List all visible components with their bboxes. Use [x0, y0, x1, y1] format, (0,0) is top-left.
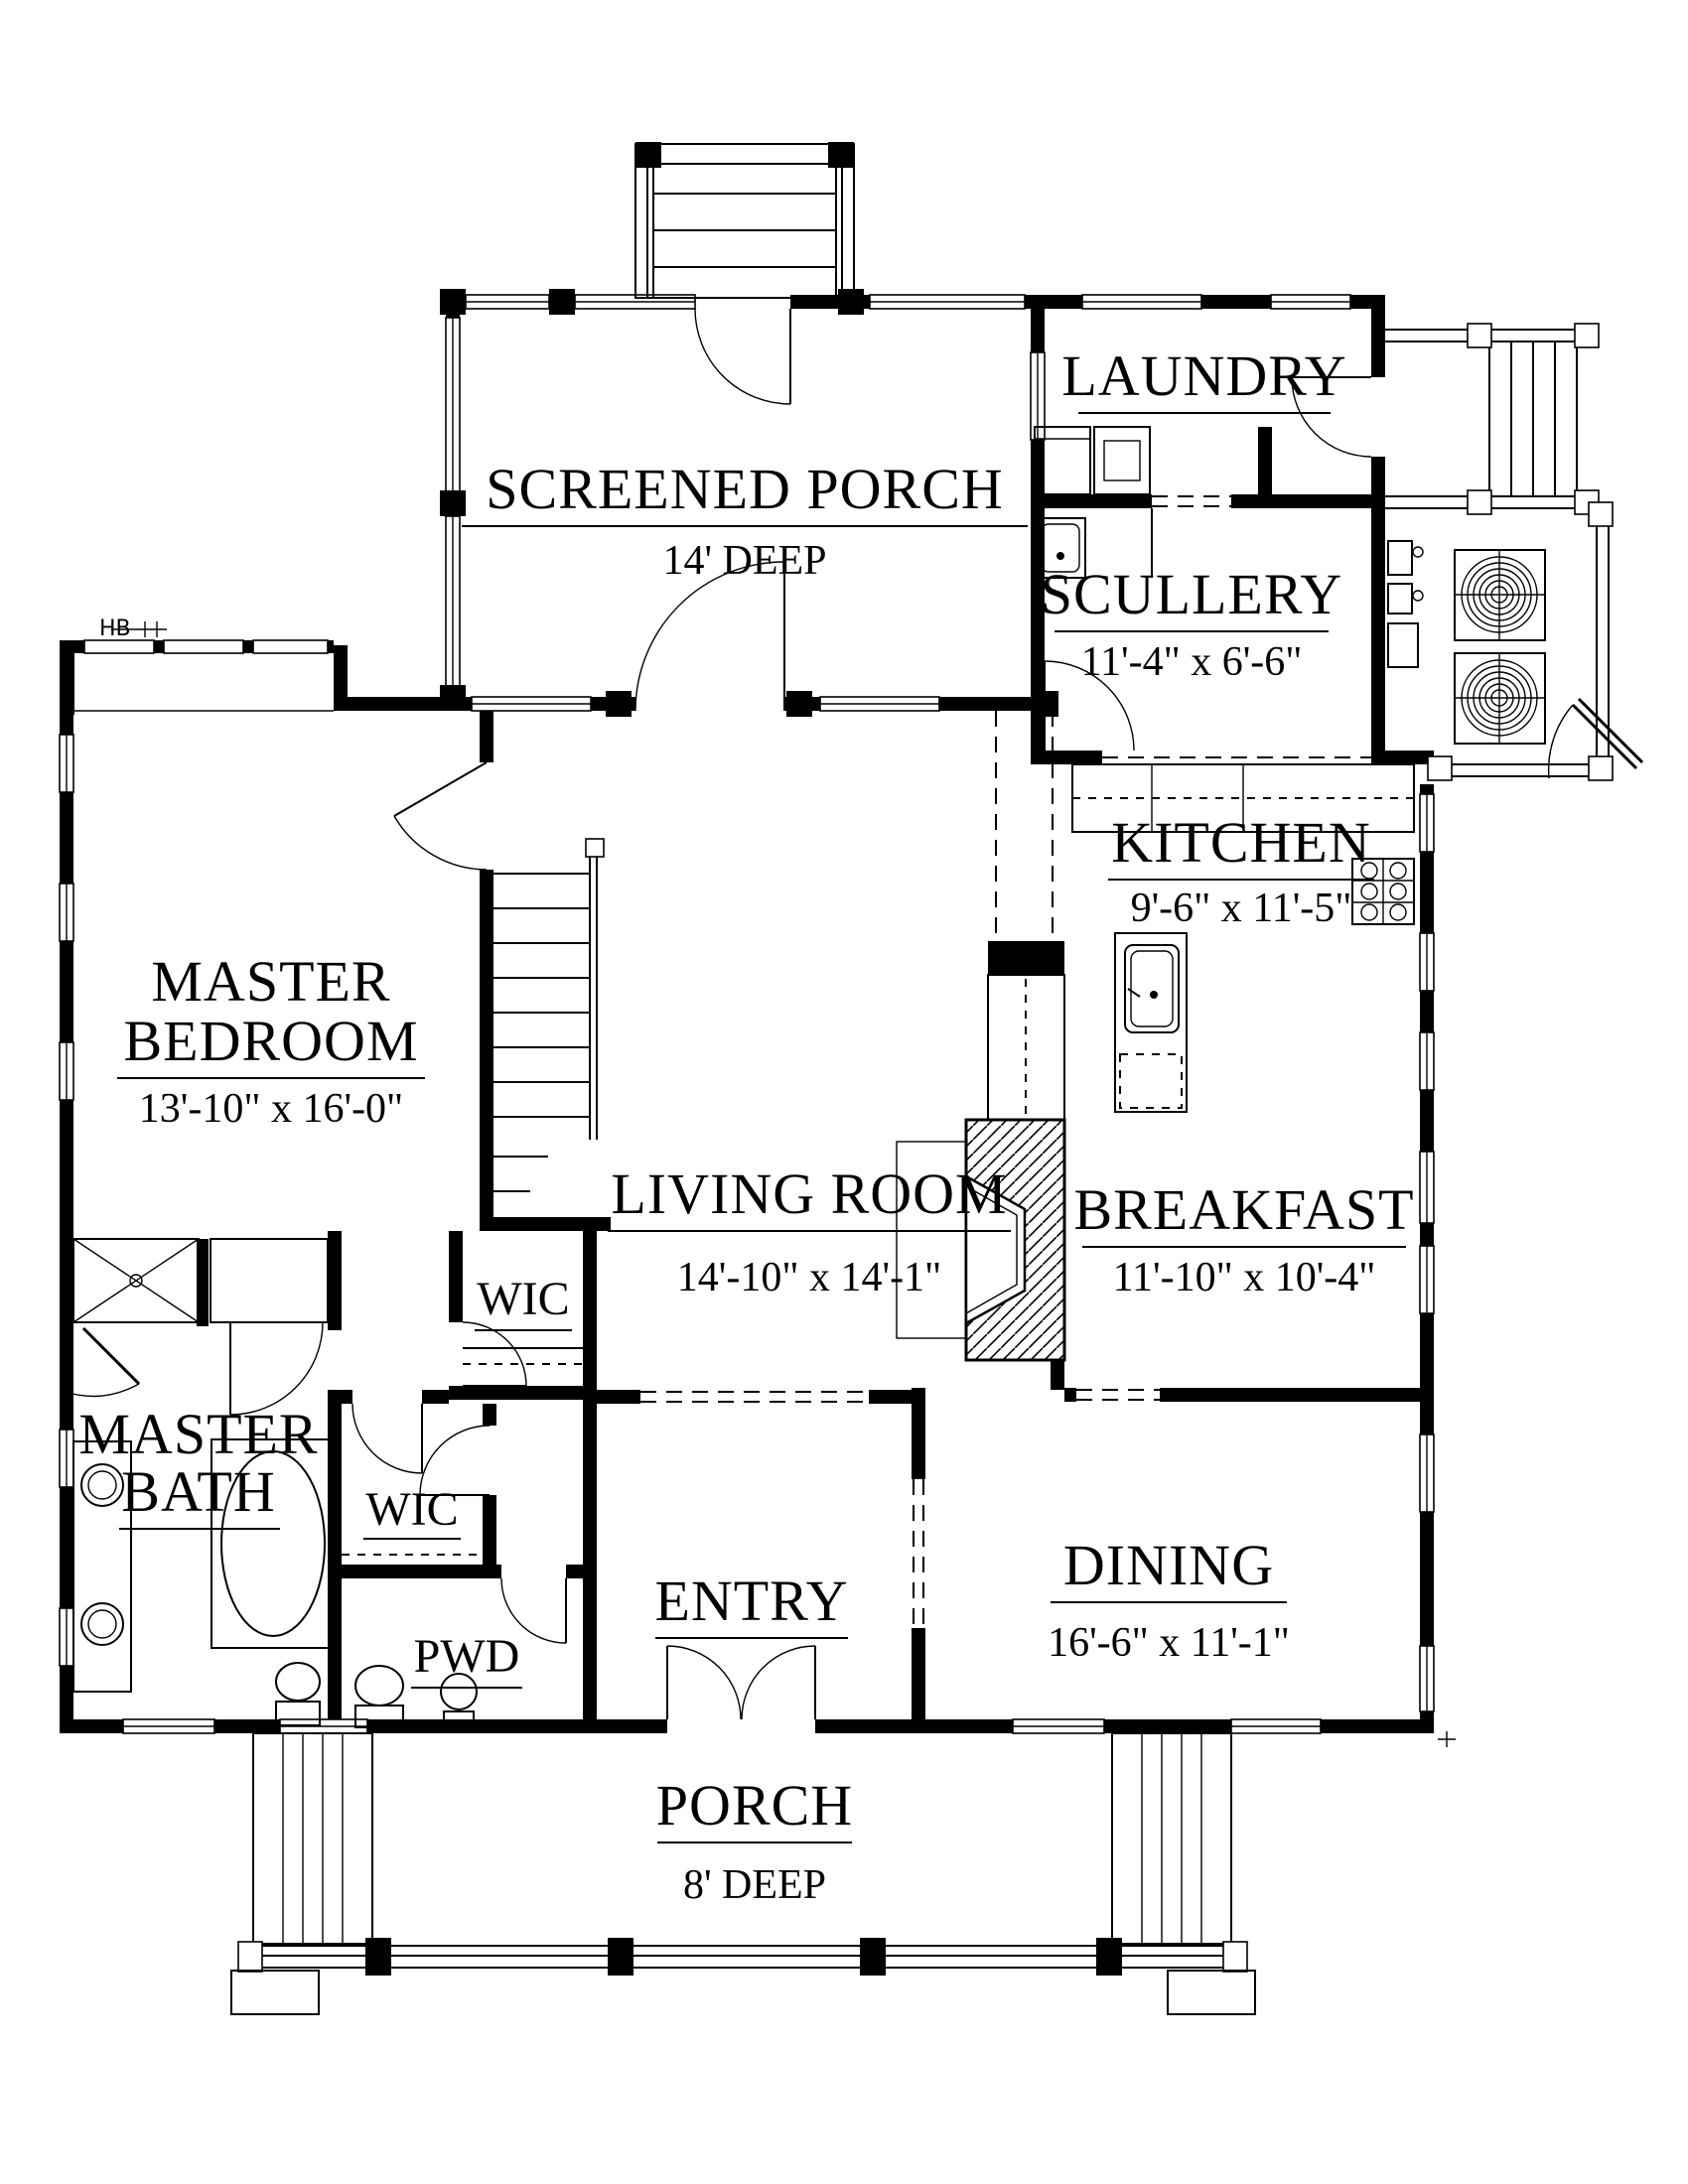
svg-text:11'-10" x 10'-4": 11'-10" x 10'-4" [1113, 1255, 1376, 1300]
window [60, 1608, 73, 1666]
toilet-master [276, 1663, 320, 1725]
porch-column-left [253, 1733, 372, 1944]
window [1420, 1646, 1434, 1711]
screen-panel [446, 318, 460, 492]
svg-text:KITCHEN: KITCHEN [1111, 810, 1371, 875]
window [1420, 1246, 1434, 1313]
label-wic-hall: WIC [475, 1273, 572, 1330]
linen-closet [211, 1239, 328, 1322]
svg-text:DINING: DINING [1063, 1533, 1274, 1597]
svg-text:LIVING ROOM: LIVING ROOM [611, 1161, 1007, 1226]
svg-text:SCULLERY: SCULLERY [1041, 562, 1343, 626]
window [1420, 1434, 1434, 1512]
screen-panel [870, 295, 1025, 309]
window [1231, 1719, 1321, 1733]
window [60, 1042, 73, 1100]
window [1420, 1152, 1434, 1223]
hvac-platform [1388, 502, 1642, 780]
door-master-bedroom [394, 762, 487, 870]
label-scullery: SCULLERY 11'-4" x 6'-6" [1041, 562, 1343, 685]
front-double-door [667, 1646, 815, 1719]
svg-text:MASTER: MASTER [78, 1402, 318, 1466]
svg-text:BREAKFAST: BREAKFAST [1073, 1177, 1414, 1242]
cased-openings [640, 496, 1420, 1628]
rear-stoop-stairs [1385, 324, 1599, 514]
screen-panel [446, 516, 460, 687]
svg-text:WIC: WIC [477, 1273, 569, 1325]
label-breakfast: BREAKFAST 11'-10" x 10'-4" [1073, 1177, 1414, 1300]
window [1013, 1719, 1104, 1733]
screen-panel [466, 295, 549, 309]
bay-window [84, 640, 328, 653]
laundry-appliances [1035, 427, 1150, 494]
label-wic-master: WIC [363, 1483, 461, 1539]
door-wic-hall [463, 1322, 526, 1386]
window [1271, 295, 1350, 309]
window [60, 1430, 73, 1487]
window [820, 697, 939, 711]
label-laundry: LAUNDRY [1061, 343, 1346, 413]
svg-text:13'-10" x 16'-0": 13'-10" x 16'-0" [139, 1086, 403, 1132]
utility-meters [1388, 541, 1423, 667]
label-living-room: LIVING ROOM 14'-10" x 14'-1" [608, 1161, 1011, 1300]
window [123, 1719, 214, 1733]
window [1420, 933, 1434, 991]
svg-text:14'-10" x 14'-1": 14'-10" x 14'-1" [677, 1255, 941, 1300]
svg-text:SCREENED PORCH: SCREENED PORCH [486, 457, 1004, 521]
label-dining: DINING 16'-6" x 11'-1" [1048, 1533, 1290, 1666]
porch-step-left [231, 1971, 319, 2014]
svg-text:16'-6" x 11'-1": 16'-6" x 11'-1" [1048, 1620, 1290, 1666]
ac-unit [1455, 550, 1545, 640]
hose-bib-label: HB [99, 616, 131, 641]
svg-text:PORCH: PORCH [656, 1773, 853, 1838]
svg-text:11'-4" x 6'-6": 11'-4" x 6'-6" [1081, 639, 1303, 685]
svg-text:ENTRY: ENTRY [654, 1569, 848, 1633]
island-dishwasher [1120, 1054, 1182, 1108]
door-porch-rear [695, 309, 790, 404]
shower [66, 1239, 199, 1397]
toilet-pwd [355, 1666, 403, 1727]
kitchen-island [1115, 933, 1187, 1112]
label-pwd: PWD [411, 1630, 522, 1688]
label-kitchen: KITCHEN 9'-6" x 11'-5" [1108, 810, 1374, 931]
label-master-bedroom: MASTER BEDROOM 13'-10" x 16'-0" [117, 949, 425, 1132]
svg-text:8' DEEP: 8' DEEP [683, 1862, 826, 1908]
window [60, 735, 73, 792]
island-sink [1125, 945, 1179, 1032]
svg-text:WIC: WIC [365, 1483, 458, 1536]
svg-text:BEDROOM: BEDROOM [123, 1009, 418, 1073]
svg-text:9'-6" x 11'-5": 9'-6" x 11'-5" [1131, 886, 1352, 931]
interior-stairs [493, 839, 604, 1191]
svg-text:BATH: BATH [121, 1459, 275, 1524]
window [1082, 295, 1201, 309]
dryer [1094, 427, 1150, 494]
window [60, 884, 73, 941]
porch-column-right [1112, 1733, 1231, 1944]
svg-text:LAUNDRY: LAUNDRY [1061, 343, 1346, 408]
svg-text:PWD: PWD [414, 1630, 520, 1683]
porch-rail [238, 1938, 1247, 1976]
label-screened-porch: SCREENED PORCH 14' DEEP [462, 457, 1028, 584]
window [1420, 1032, 1434, 1090]
rear-deck-steps [635, 142, 854, 298]
label-entry: ENTRY [654, 1569, 848, 1638]
door-bath-hall [352, 1404, 422, 1473]
window [472, 697, 591, 711]
svg-text:14' DEEP: 14' DEEP [662, 538, 826, 584]
floor-plan-drawing: SCREENED PORCH 14' DEEP LAUNDRY SCULLERY… [0, 0, 1688, 2184]
svg-text:MASTER: MASTER [151, 949, 390, 1014]
label-porch: PORCH 8' DEEP [656, 1773, 853, 1908]
label-master-bath: MASTER BATH [78, 1402, 318, 1529]
ac-unit [1455, 653, 1545, 744]
door-porch-living [635, 562, 784, 711]
window [1420, 794, 1434, 852]
porch-step-right [1168, 1971, 1255, 2014]
floor-plan-page: SCREENED PORCH 14' DEEP LAUNDRY SCULLERY… [0, 0, 1688, 2184]
